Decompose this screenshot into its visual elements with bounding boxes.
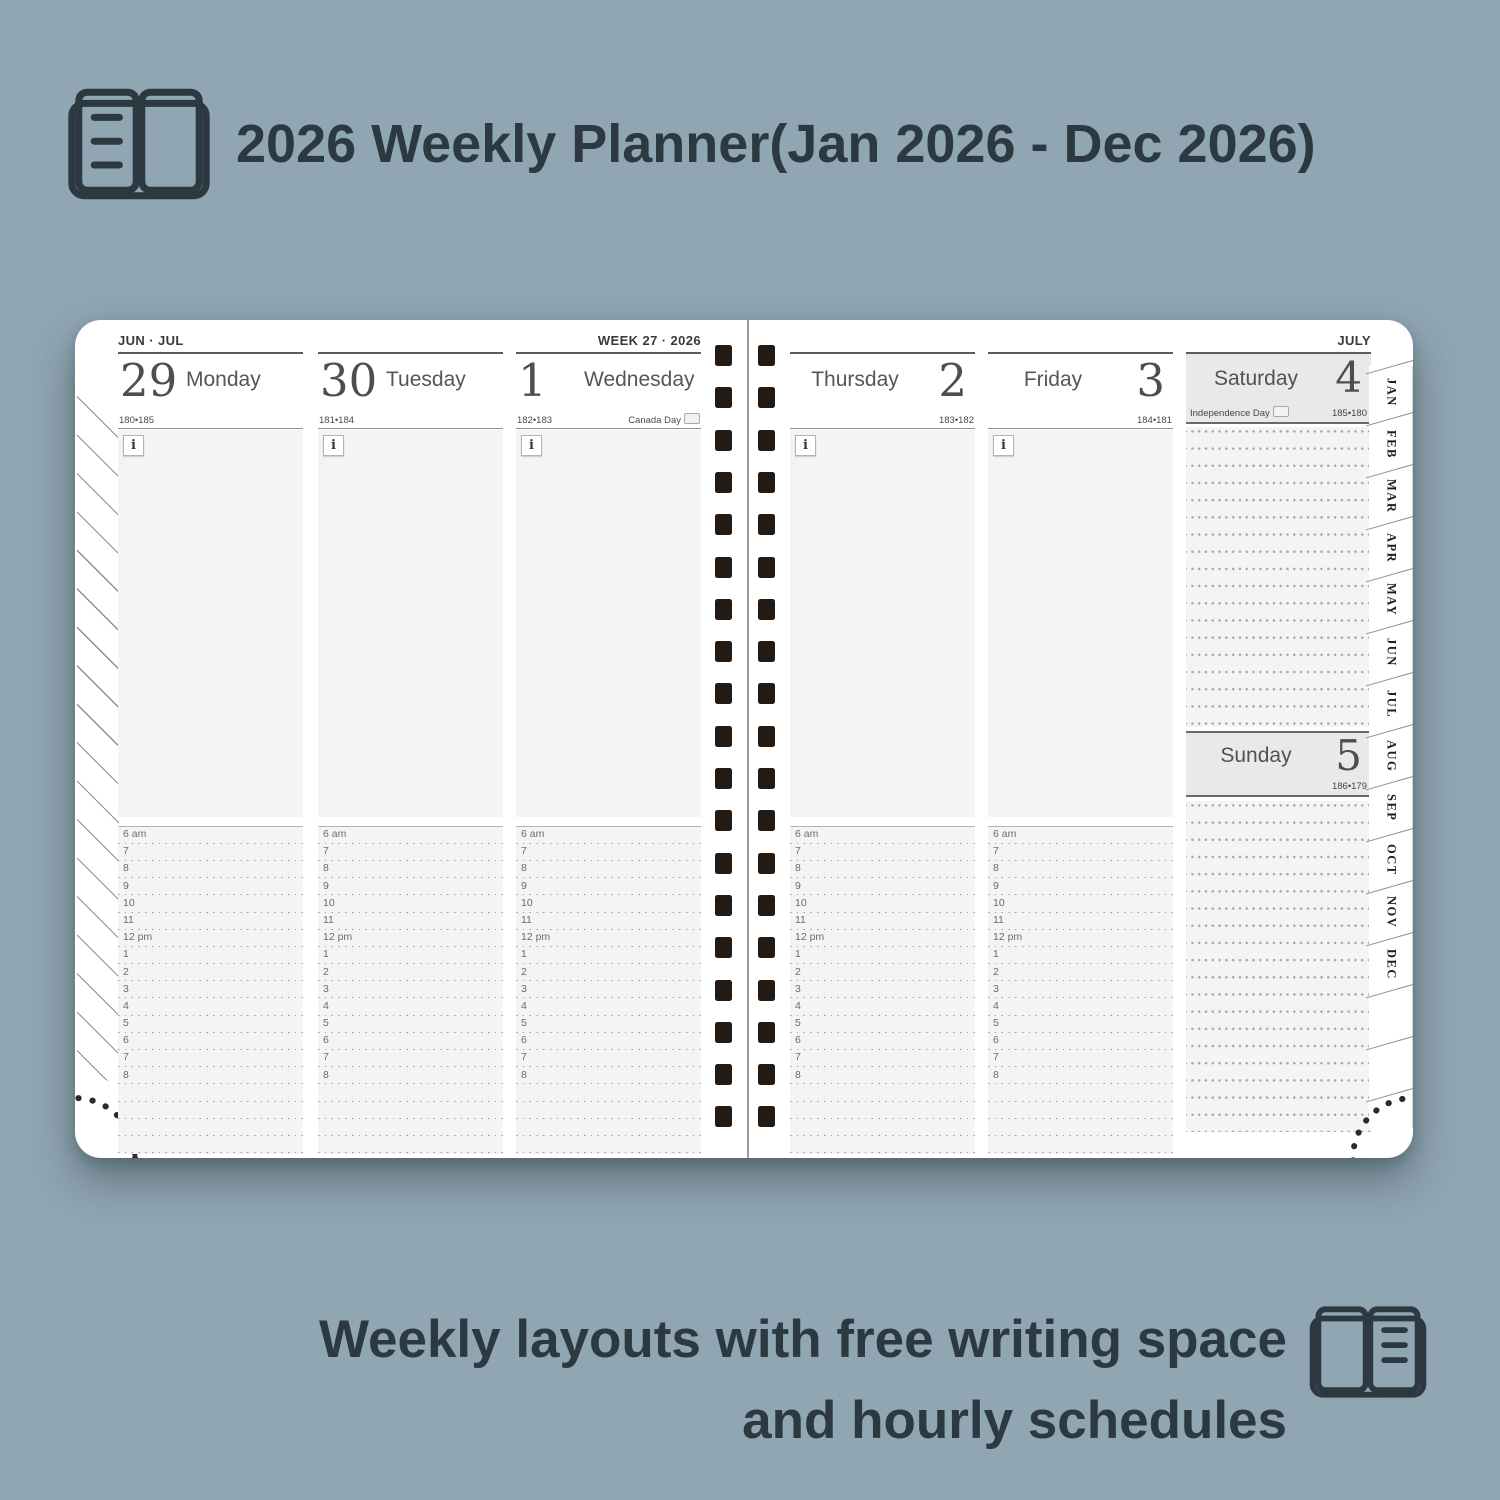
- spiral-hole: [758, 641, 775, 662]
- hour-label: 6: [123, 1034, 129, 1046]
- hour-label: 8: [521, 862, 527, 874]
- hour-row: 7: [790, 1050, 975, 1067]
- hour-label: 7: [323, 1051, 329, 1063]
- hour-label: 1: [123, 948, 129, 960]
- schedule-area: 6 am789101112 pm12345678: [318, 826, 503, 1154]
- hour-label: 7: [521, 1051, 527, 1063]
- day-header: 29Monday: [118, 352, 303, 410]
- hour-row: 11: [118, 913, 303, 930]
- schedule-area: 6 am789101112 pm12345678: [516, 826, 701, 1154]
- hour-label: 6: [993, 1034, 999, 1046]
- spiral-hole: [758, 1022, 775, 1043]
- hour-row: 12 pm: [988, 930, 1173, 947]
- hour-label: 4: [521, 1000, 527, 1012]
- hour-row: 10: [318, 896, 503, 913]
- hour-row: [118, 1085, 303, 1102]
- hour-row: 3: [318, 982, 503, 999]
- spiral-hole: [715, 768, 732, 789]
- spiral-hole: [758, 980, 775, 1001]
- free-writing-area: i: [318, 430, 503, 817]
- spiral-hole: [715, 810, 732, 831]
- hour-label: 1: [993, 948, 999, 960]
- tab-label: JUN: [1384, 638, 1399, 667]
- day-number: 1: [518, 358, 547, 403]
- hour-label: 3: [993, 983, 999, 995]
- hour-row: [988, 1102, 1173, 1119]
- hour-row: [516, 1136, 701, 1153]
- product-image: 2026 Weekly Planner(Jan 2026 - Dec 2026)…: [0, 0, 1500, 1500]
- spiral-hole: [715, 853, 732, 874]
- hour-row: 9: [988, 879, 1173, 896]
- tab-label: MAY: [1384, 583, 1399, 616]
- hour-label: 10: [323, 897, 335, 909]
- hour-label: 12 pm: [993, 931, 1022, 943]
- hour-row: 6 am: [118, 827, 303, 844]
- spiral-hole: [715, 980, 732, 1001]
- day-header: Thursday2: [790, 352, 975, 410]
- day-subrow: 182•183Canada Day: [516, 410, 701, 429]
- day-number: 4: [1335, 357, 1362, 399]
- hour-row: 7: [318, 1050, 503, 1067]
- hour-label: 5: [993, 1017, 999, 1029]
- hour-row: 11: [318, 913, 503, 930]
- hour-row: 3: [118, 982, 303, 999]
- hour-label: 10: [123, 897, 135, 909]
- hour-label: 11: [123, 914, 134, 926]
- hour-label: 7: [123, 1051, 129, 1063]
- weekend-column: Saturday 4 Independence Day 185•180 Sund…: [1186, 352, 1371, 1132]
- planner-spread: JUN · JUL WEEK 27 · 2026 JULY Saturday 4…: [75, 320, 1413, 1158]
- hour-row: [988, 1085, 1173, 1102]
- day-subrow: 184•181: [988, 410, 1173, 429]
- month-tab-sep: SEP: [1369, 782, 1413, 834]
- hour-label: 11: [521, 914, 532, 926]
- spiral-hole: [715, 641, 732, 662]
- hour-label: 12 pm: [123, 931, 152, 943]
- info-icon: i: [521, 435, 542, 456]
- day-name: Monday: [186, 368, 261, 392]
- ca-flag-icon: [684, 413, 700, 424]
- tab-label: JAN: [1384, 378, 1399, 407]
- tab-label: APR: [1384, 533, 1399, 563]
- hour-row: 12 pm: [318, 930, 503, 947]
- day-number: 3: [1136, 358, 1165, 403]
- hour-label: 6: [521, 1034, 527, 1046]
- hour-label: 4: [323, 1000, 329, 1012]
- spiral-hole: [715, 599, 732, 620]
- spiral-hole: [758, 895, 775, 916]
- hour-row: 2: [318, 965, 503, 982]
- spiral-hole: [715, 345, 732, 366]
- hour-row: [318, 1102, 503, 1119]
- hour-row: 4: [790, 999, 975, 1016]
- spiral-hole: [758, 345, 775, 366]
- spiral-hole: [715, 472, 732, 493]
- hour-row: 10: [516, 896, 701, 913]
- hour-label: 9: [795, 880, 801, 892]
- hour-row: 6 am: [516, 827, 701, 844]
- hour-row: 6: [988, 1033, 1173, 1050]
- hour-row: 3: [516, 982, 701, 999]
- spiral-hole: [758, 853, 775, 874]
- day-of-year: 186•179: [1332, 781, 1367, 792]
- hour-row: 8: [988, 861, 1173, 878]
- spiral-hole: [758, 937, 775, 958]
- hour-row: 10: [790, 896, 975, 913]
- day-number: 29: [120, 358, 177, 403]
- hour-label: 5: [521, 1017, 527, 1029]
- hour-label: 7: [993, 1051, 999, 1063]
- day-column: 1Wednesday182•183Canada Dayi6 am78910111…: [516, 352, 701, 1154]
- day-name: Friday: [988, 368, 1118, 392]
- hour-label: 8: [795, 862, 801, 874]
- hour-row: [118, 1119, 303, 1136]
- day-header: 30Tuesday: [318, 352, 503, 410]
- hour-row: 12 pm: [516, 930, 701, 947]
- day-name: Sunday: [1196, 744, 1316, 768]
- hour-row: 9: [516, 879, 701, 896]
- info-icon: i: [993, 435, 1014, 456]
- day-of-year: 181•184: [319, 415, 354, 426]
- hour-label: 5: [795, 1017, 801, 1029]
- hour-label: 7: [521, 845, 527, 857]
- month-tab-aug: AUG: [1369, 730, 1413, 782]
- month-tab-jun: JUN: [1369, 626, 1413, 678]
- spiral-hole: [758, 387, 775, 408]
- spiral-hole: [715, 726, 732, 747]
- hour-row: [118, 1136, 303, 1153]
- week-label: WEEK 27 · 2026: [598, 333, 701, 348]
- hour-row: 2: [118, 965, 303, 982]
- hour-label: 7: [993, 845, 999, 857]
- hour-label: 1: [795, 948, 801, 960]
- hour-row: 2: [988, 965, 1173, 982]
- spiral-hole: [758, 1106, 775, 1127]
- day-of-year: 180•185: [119, 415, 154, 426]
- hour-label: 6 am: [993, 828, 1016, 840]
- hour-label: 4: [993, 1000, 999, 1012]
- hour-row: 8: [790, 1068, 975, 1085]
- hour-row: [118, 1102, 303, 1119]
- day-of-year: 184•181: [1137, 415, 1172, 426]
- month-tab-may: MAY: [1369, 574, 1413, 626]
- spiral-hole: [758, 599, 775, 620]
- hour-label: 8: [323, 1069, 329, 1081]
- hour-row: 11: [790, 913, 975, 930]
- footer-caption: Weekly layouts with free writing space a…: [319, 1300, 1287, 1461]
- holiday-label: Independence Day: [1190, 406, 1289, 419]
- hour-row: 8: [516, 1068, 701, 1085]
- spiral-hole: [715, 1022, 732, 1043]
- hour-row: 12 pm: [118, 930, 303, 947]
- month-label: JULY: [1337, 333, 1371, 348]
- day-name: Tuesday: [386, 368, 466, 392]
- schedule-area: 6 am789101112 pm12345678: [790, 826, 975, 1154]
- day-column: 30Tuesday181•184i6 am789101112 pm1234567…: [318, 352, 503, 1154]
- month-tab-nov: NOV: [1369, 886, 1413, 938]
- hour-label: 2: [123, 966, 129, 978]
- hour-label: 7: [123, 845, 129, 857]
- hour-row: [516, 1085, 701, 1102]
- hour-row: 4: [516, 999, 701, 1016]
- open-book-icon: [64, 88, 214, 200]
- corner-perforation: [1303, 1048, 1413, 1158]
- hour-row: [790, 1102, 975, 1119]
- hour-label: 9: [123, 880, 129, 892]
- hour-row: 7: [516, 844, 701, 861]
- free-writing-area: i: [790, 430, 975, 817]
- hour-row: 3: [790, 982, 975, 999]
- hour-row: 7: [516, 1050, 701, 1067]
- holiday-label: Canada Day: [628, 413, 700, 426]
- hour-row: [988, 1136, 1173, 1153]
- month-range-label: JUN · JUL: [118, 333, 184, 348]
- hour-label: 1: [521, 948, 527, 960]
- spiral-hole: [758, 726, 775, 747]
- holiday-text: Canada Day: [628, 415, 681, 426]
- tab-label: OCT: [1384, 844, 1399, 876]
- hour-label: 3: [123, 983, 129, 995]
- free-writing-area: i: [988, 430, 1173, 817]
- day-of-year: 182•183: [517, 415, 552, 426]
- hour-label: 9: [993, 880, 999, 892]
- hour-row: 8: [516, 861, 701, 878]
- hour-row: 4: [988, 999, 1173, 1016]
- holiday-text: Independence Day: [1190, 408, 1270, 419]
- month-tab-feb: FEB: [1369, 418, 1413, 470]
- hour-row: 6: [318, 1033, 503, 1050]
- tab-label: FEB: [1384, 430, 1399, 459]
- tab-label: MAR: [1384, 479, 1399, 513]
- hour-row: [516, 1102, 701, 1119]
- hour-row: 6 am: [988, 827, 1173, 844]
- hour-label: 6 am: [123, 828, 146, 840]
- hour-row: [318, 1085, 503, 1102]
- month-tab-dec: DEC: [1369, 938, 1413, 990]
- day-number: 2: [938, 358, 967, 403]
- month-tab-strip: JANFEBMARAPRMAYJUNJULAUGSEPOCTNOVDEC: [1369, 366, 1413, 1128]
- hour-row: 4: [118, 999, 303, 1016]
- hour-row: 7: [988, 844, 1173, 861]
- hour-label: 5: [323, 1017, 329, 1029]
- hour-row: 8: [318, 861, 503, 878]
- right-page-header: JULY: [790, 333, 1371, 348]
- hour-row: 12 pm: [790, 930, 975, 947]
- hour-label: 10: [993, 897, 1005, 909]
- hour-label: 3: [323, 983, 329, 995]
- day-subrow: 183•182: [790, 410, 975, 429]
- hour-label: 2: [521, 966, 527, 978]
- hour-row: 8: [988, 1068, 1173, 1085]
- hour-row: 8: [118, 861, 303, 878]
- free-writing-area: i: [516, 430, 701, 817]
- hour-label: 1: [323, 948, 329, 960]
- day-subrow: 181•184: [318, 410, 503, 429]
- hour-label: 9: [323, 880, 329, 892]
- hour-row: 2: [516, 965, 701, 982]
- hour-row: 2: [790, 965, 975, 982]
- hour-row: 5: [516, 1016, 701, 1033]
- info-icon: i: [795, 435, 816, 456]
- hour-label: 8: [993, 1069, 999, 1081]
- hour-label: 3: [795, 983, 801, 995]
- hour-row: 8: [118, 1068, 303, 1085]
- spiral-hole: [758, 768, 775, 789]
- day-name: Thursday: [790, 368, 920, 392]
- hour-label: 5: [123, 1017, 129, 1029]
- saturday-header: Saturday 4 Independence Day 185•180: [1186, 352, 1371, 424]
- month-tab-jan: JAN: [1369, 366, 1413, 418]
- hour-label: 3: [521, 983, 527, 995]
- hour-label: 12 pm: [323, 931, 352, 943]
- hour-row: 6: [118, 1033, 303, 1050]
- day-of-year: 185•180: [1332, 408, 1367, 419]
- tab-label: AUG: [1384, 740, 1399, 772]
- hour-label: 8: [993, 862, 999, 874]
- hour-label: 4: [123, 1000, 129, 1012]
- hour-row: 7: [318, 844, 503, 861]
- hour-row: 6: [516, 1033, 701, 1050]
- hour-label: 7: [323, 845, 329, 857]
- hour-row: 11: [988, 913, 1173, 930]
- hour-row: 7: [988, 1050, 1173, 1067]
- spiral-hole: [715, 937, 732, 958]
- hour-label: 6 am: [323, 828, 346, 840]
- spiral-hole: [758, 514, 775, 535]
- info-icon: i: [123, 435, 144, 456]
- hour-row: 1: [118, 947, 303, 964]
- hour-label: 6: [323, 1034, 329, 1046]
- hour-row: [318, 1119, 503, 1136]
- month-tab-oct: OCT: [1369, 834, 1413, 886]
- hour-row: 6: [790, 1033, 975, 1050]
- hour-row: 5: [988, 1016, 1173, 1033]
- day-number: 5: [1335, 735, 1362, 777]
- hour-row: 1: [988, 947, 1173, 964]
- month-tab-apr: APR: [1369, 522, 1413, 574]
- hour-label: 11: [795, 914, 806, 926]
- tab-label: DEC: [1384, 949, 1399, 980]
- hour-row: [318, 1136, 503, 1153]
- open-book-icon: [1308, 1298, 1428, 1411]
- hour-label: 7: [795, 845, 801, 857]
- schedule-area: 6 am789101112 pm12345678: [988, 826, 1173, 1154]
- hour-label: 6 am: [795, 828, 818, 840]
- hour-row: 1: [790, 947, 975, 964]
- page-gutter-line: [747, 320, 749, 1158]
- hour-row: 1: [318, 947, 503, 964]
- hour-row: 7: [790, 844, 975, 861]
- hour-row: 9: [790, 879, 975, 896]
- hour-label: 8: [323, 862, 329, 874]
- hour-label: 9: [521, 880, 527, 892]
- footer-line-1: Weekly layouts with free writing space: [319, 1300, 1287, 1381]
- month-tab-mar: MAR: [1369, 470, 1413, 522]
- spiral-hole: [758, 683, 775, 704]
- hour-row: 5: [118, 1016, 303, 1033]
- hour-row: 6 am: [790, 827, 975, 844]
- hour-row: 1: [516, 947, 701, 964]
- page-edge-hatch: [77, 388, 119, 1088]
- hour-label: 8: [521, 1069, 527, 1081]
- hour-row: 10: [118, 896, 303, 913]
- spiral-hole: [715, 514, 732, 535]
- spiral-hole: [758, 810, 775, 831]
- tab-label: SEP: [1384, 794, 1399, 821]
- hour-label: 2: [795, 966, 801, 978]
- hour-row: 6 am: [318, 827, 503, 844]
- hour-row: 7: [118, 844, 303, 861]
- sunday-header: Sunday 5 186•179: [1186, 731, 1371, 797]
- day-number: 30: [320, 358, 377, 403]
- hour-label: 4: [795, 1000, 801, 1012]
- month-tab-jul: JUL: [1369, 678, 1413, 730]
- left-page-header: JUN · JUL WEEK 27 · 2026: [118, 333, 701, 348]
- hour-row: 8: [318, 1068, 503, 1085]
- hour-row: 9: [118, 879, 303, 896]
- hour-label: 8: [123, 862, 129, 874]
- hour-row: 7: [118, 1050, 303, 1067]
- hour-row: [516, 1119, 701, 1136]
- spiral-hole: [758, 430, 775, 451]
- hour-row: [790, 1119, 975, 1136]
- hour-label: 6: [795, 1034, 801, 1046]
- hour-row: [790, 1085, 975, 1102]
- day-name: Wednesday: [584, 368, 695, 392]
- spiral-hole: [715, 430, 732, 451]
- hour-label: 2: [993, 966, 999, 978]
- day-column: 29Monday180•185i6 am789101112 pm12345678: [118, 352, 303, 1154]
- day-of-year: 183•182: [939, 415, 974, 426]
- page-title: 2026 Weekly Planner(Jan 2026 - Dec 2026): [236, 113, 1316, 175]
- spiral-hole: [715, 557, 732, 578]
- spiral-hole: [715, 1106, 732, 1127]
- hour-row: 11: [516, 913, 701, 930]
- hour-label: 10: [795, 897, 807, 909]
- header: 2026 Weekly Planner(Jan 2026 - Dec 2026): [64, 88, 1316, 200]
- free-writing-area: i: [118, 430, 303, 817]
- hour-row: 8: [790, 861, 975, 878]
- spiral-hole: [758, 1064, 775, 1085]
- hour-label: 8: [123, 1069, 129, 1081]
- hour-row: 3: [988, 982, 1173, 999]
- tab-label: JUL: [1384, 690, 1399, 718]
- hour-label: 12 pm: [795, 931, 824, 943]
- hour-row: 5: [318, 1016, 503, 1033]
- hour-label: 8: [795, 1069, 801, 1081]
- day-subrow: 180•185: [118, 410, 303, 429]
- info-icon: i: [323, 435, 344, 456]
- spiral-hole: [715, 1064, 732, 1085]
- hour-row: 10: [988, 896, 1173, 913]
- spiral-hole: [715, 895, 732, 916]
- hour-label: 2: [323, 966, 329, 978]
- hour-label: 10: [521, 897, 533, 909]
- day-column: Friday3184•181i6 am789101112 pm12345678: [988, 352, 1173, 1154]
- spiral-hole: [715, 683, 732, 704]
- spiral-hole: [758, 472, 775, 493]
- dotted-writing-area: [1186, 427, 1371, 727]
- day-header: 1Wednesday: [516, 352, 701, 410]
- us-flag-icon: [1273, 406, 1289, 417]
- hour-row: 4: [318, 999, 503, 1016]
- day-name: Saturday: [1196, 367, 1316, 391]
- tab-label: NOV: [1384, 896, 1399, 928]
- hour-row: 5: [790, 1016, 975, 1033]
- hour-label: 11: [993, 914, 1004, 926]
- schedule-area: 6 am789101112 pm12345678: [118, 826, 303, 1154]
- hour-label: 12 pm: [521, 931, 550, 943]
